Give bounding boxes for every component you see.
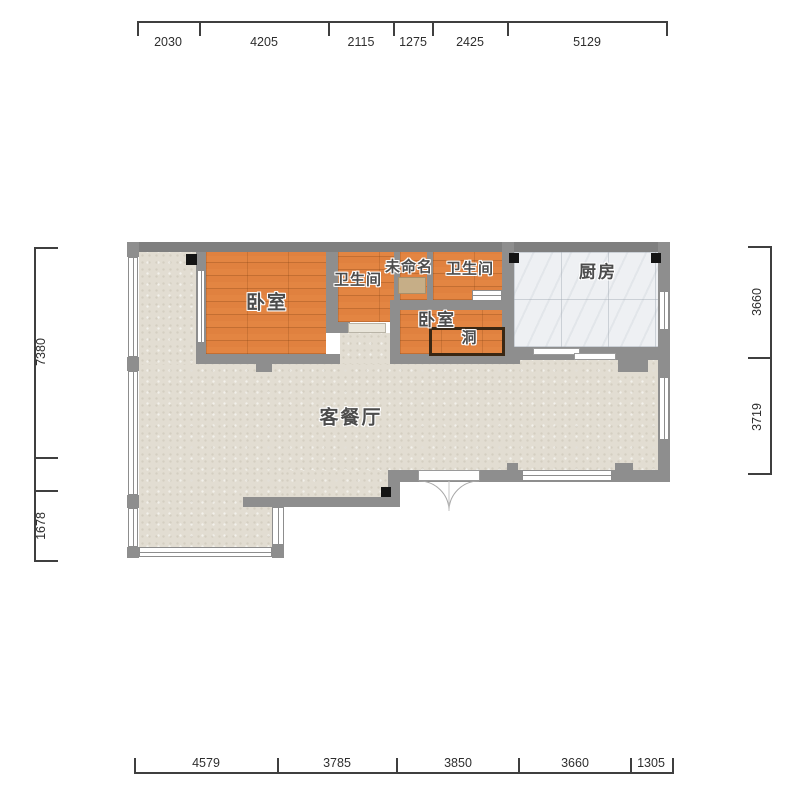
bathroom-1-label: 卫生间 (334, 269, 382, 290)
dim-left-value: 7380 (34, 338, 48, 366)
dim-bottom-value: 3785 (323, 756, 351, 770)
wall-bedroom1-bottom (196, 354, 340, 364)
floor-plan-canvas: 卧室 卫生间 未命名 卫生间 厨房 卧室 洞 客餐厅 2030 4205 211… (0, 0, 800, 800)
wall-stub-bedroom1 (256, 364, 272, 372)
living-room-floor (139, 360, 658, 470)
dim-bottom-tick (672, 758, 674, 772)
wall-outer-left-seg3 (127, 495, 139, 508)
dim-left-tick (34, 490, 58, 492)
pillar-bedroom1 (186, 254, 197, 265)
entrance-door-sill (418, 470, 480, 481)
living-room-floor-left-column (139, 252, 196, 364)
window-left-3 (128, 508, 138, 547)
dim-top-tick (666, 22, 668, 36)
dim-right-tick (748, 473, 772, 475)
dim-top-tick (137, 22, 139, 36)
dim-bottom-tick (396, 758, 398, 772)
window-bottom-right (522, 470, 612, 481)
bedroom-1-label: 卧室 (246, 288, 288, 315)
entrance-door-swing-arcs (418, 481, 480, 514)
dim-bottom-value: 1305 (637, 756, 665, 770)
dim-top-tick (507, 22, 509, 36)
window-left-1 (128, 257, 138, 357)
wall-outer-left-corner (127, 547, 139, 558)
dim-bottom-value: 3850 (444, 756, 472, 770)
dim-left-tick (34, 560, 58, 562)
dim-bottom-value: 3660 (561, 756, 589, 770)
wall-bedroom1-bath1 (326, 252, 338, 333)
living-dining-label: 客餐厅 (319, 403, 382, 430)
hole-label: 洞 (461, 327, 478, 348)
dim-top-line (137, 21, 668, 23)
dim-left-value: 1678 (34, 512, 48, 540)
dim-left-tick (34, 457, 58, 459)
wall-bath1-bottom (326, 322, 350, 333)
window-bottom-left (139, 547, 272, 557)
dim-bottom-tick (518, 758, 520, 772)
dim-left-tick (34, 247, 58, 249)
dim-right-tick (748, 357, 772, 359)
dim-bottom-tick (277, 758, 279, 772)
window-left-2 (128, 371, 138, 495)
window-step (272, 507, 284, 545)
dim-bottom-tick (630, 758, 632, 772)
bathroom-2-label: 卫生间 (446, 258, 494, 279)
kitchen-sliding-door-panel-2 (574, 353, 616, 360)
dim-top-value: 2030 (154, 35, 182, 49)
pillar-entrance (381, 487, 391, 497)
unnamed-room-fixture (398, 277, 426, 294)
bathroom-1-door (348, 323, 386, 333)
wall-block-kitchen-south (618, 360, 648, 372)
dim-right-tick (748, 246, 772, 248)
dim-right-line (770, 246, 772, 475)
wall-outer-left-seg1 (127, 242, 139, 257)
wall-outer-top (127, 242, 670, 252)
kitchen-sliding-door-panel-1 (533, 348, 580, 355)
dim-top-tick (199, 22, 201, 36)
living-room-floor-corridor (340, 333, 390, 364)
bedroom-2-label: 卧室 (418, 306, 456, 331)
wall-step-horizontal (243, 497, 400, 507)
kitchen-label: 厨房 (579, 258, 617, 283)
wall-corner-step (272, 545, 284, 558)
dim-bottom-line (134, 772, 674, 774)
window-bedroom1 (197, 270, 205, 343)
wall-outer-right (658, 242, 670, 482)
dim-bottom-tick (134, 758, 136, 772)
dim-top-value: 2425 (456, 35, 484, 49)
dim-top-tick (432, 22, 434, 36)
dim-right-value: 3660 (750, 288, 764, 316)
dim-top-tick (328, 22, 330, 36)
window-bath2-shelf (472, 290, 502, 301)
unnamed-room-label: 未命名 (385, 256, 433, 277)
pillar-kitchen-left (509, 253, 519, 263)
dim-top-value: 4205 (250, 35, 278, 49)
wall-bump-1 (507, 463, 518, 470)
dim-top-value: 1275 (399, 35, 427, 49)
window-right-kitchen (659, 291, 669, 330)
dim-right-value: 3719 (750, 403, 764, 431)
dim-top-value: 5129 (573, 35, 601, 49)
wall-outer-left-seg2 (127, 357, 139, 371)
wall-bump-2 (615, 463, 633, 470)
dim-top-tick (393, 22, 395, 36)
pillar-kitchen-right (651, 253, 661, 263)
dim-bottom-value: 4579 (192, 756, 220, 770)
dim-top-value: 2115 (348, 35, 375, 49)
living-room-floor-bottom-left (139, 470, 284, 547)
window-right-living (659, 377, 669, 440)
